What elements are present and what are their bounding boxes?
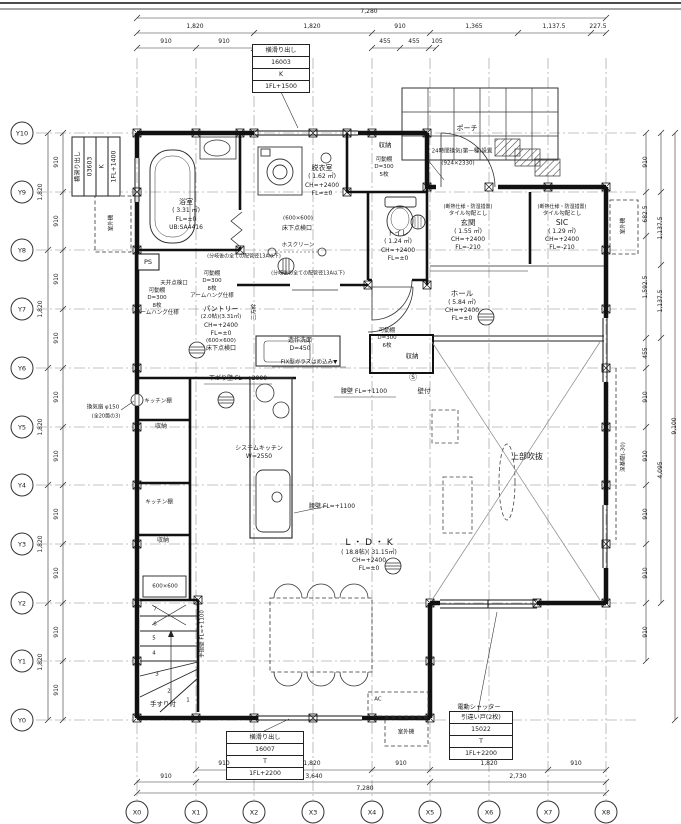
dimension-label: 1,820	[303, 24, 320, 30]
ldk-dashed	[432, 410, 515, 533]
dimension-label: 682.5	[643, 205, 649, 222]
room-sic-line: FL=-210	[538, 244, 587, 252]
room-ldk-line: FL=±0	[341, 565, 397, 573]
dimension-label: 910	[643, 156, 649, 167]
dimension-label: 1,137.5	[543, 24, 566, 30]
room-genkan: (断熱仕様・防湿措置)タイル勾配とし玄関( 1.55 ㎡)CH=+2400FL=…	[444, 204, 493, 253]
dimension-label: 910	[54, 332, 60, 343]
dimension-label: 227.5	[589, 24, 606, 30]
grid-bubble-y5: Y5	[11, 416, 34, 439]
washing-machine	[258, 147, 302, 195]
grid-bubble-y1: Y1	[11, 650, 34, 673]
exterior-walls	[137, 133, 606, 718]
annotation-label: PS	[144, 259, 152, 266]
window-spec-row: 1FL+1500	[253, 80, 309, 92]
annotation-label: 収納	[155, 424, 167, 430]
dimension-label: 2,730	[509, 774, 526, 780]
annotation-label: 下がり壁 FL=+2000	[209, 376, 267, 382]
dimension-label: 910	[160, 39, 171, 45]
dimension-label: 1,137.5	[658, 290, 664, 313]
dimension-label: 910	[54, 156, 60, 167]
shelf-closet-top-line: 可動棚	[374, 157, 393, 164]
grid-bubble-x4: X4	[361, 801, 384, 824]
room-genkan-line: 玄関	[444, 218, 493, 228]
dimension-label: 910	[54, 391, 60, 402]
room-hall-line: ( 5.84 ㎡)	[445, 299, 479, 307]
room-ldk-line: L ・ D ・ K	[341, 537, 397, 549]
dimension-label: 910	[54, 684, 60, 695]
window-spec-row: K	[253, 68, 309, 80]
grid-bubble-y2: Y2	[11, 592, 34, 615]
dimension-label: 910	[54, 450, 60, 461]
annotation-label: 収納	[406, 353, 419, 360]
shelf-hall-closet: 可動棚D=3006枚	[377, 328, 396, 350]
room-toilet-line: FL=±0	[381, 255, 415, 263]
washbasin-label-line: D=450	[288, 345, 312, 353]
annotation-label: (924×2330)	[441, 161, 474, 167]
shelf-hall-closet-line: 可動棚	[377, 328, 396, 335]
annotation-label: (600×600)	[283, 216, 313, 222]
dimension-label: 910	[54, 508, 60, 519]
grid-bubble-y0: Y0	[11, 709, 34, 732]
washbasin-label-line: 造作洗面	[288, 337, 312, 345]
dimension-label: 910	[218, 761, 229, 767]
room-ldk: L ・ D ・ K( 18.8帖)( 31.15㎡)CH=+2400FL=±0	[341, 537, 397, 573]
dimension-label: 1,820	[186, 24, 203, 30]
annotation-label: 室外機	[109, 215, 115, 232]
dimension-label: 1,592.5	[643, 276, 649, 299]
shelf-left-line: 可動棚	[135, 288, 179, 295]
annotation-label: AC	[374, 697, 382, 703]
dimension-label: 455	[643, 347, 649, 358]
grid-bubble-x6: X6	[478, 801, 501, 824]
shelf-left: 可動棚D=3008枚アームハング仕様	[135, 288, 179, 318]
room-hall-line: ホール	[445, 289, 479, 299]
annotation-label: 三方枠	[252, 304, 258, 321]
dimension-label: 7,280	[356, 786, 373, 792]
window-spec-row: T	[227, 755, 303, 767]
bath-counter	[200, 137, 236, 159]
dimension-label: 1,820	[480, 761, 497, 767]
annotation-label: 換気扇 φ150	[87, 405, 119, 411]
dimension-label: 9,100	[672, 417, 678, 434]
shelf-left-line: アームハング仕様	[135, 310, 179, 317]
annotation-label: 1	[186, 698, 190, 704]
shelf-pantry-top-line: D=300	[190, 278, 234, 285]
annotation-label: (全20箇の3)	[92, 415, 120, 420]
room-pantry-line: FL=±0	[201, 330, 242, 338]
kitchen-label-line: システムキッチン	[235, 445, 283, 453]
dimension-label: 1,820	[303, 761, 320, 767]
window-spec-row: 引違い戸(2枚)	[450, 712, 512, 723]
grid-bubble-x5: X5	[419, 801, 442, 824]
grid-bubble-x8: X8	[595, 801, 618, 824]
floor-plan-canvas: 横滑り出し 16003 K 1FL+1500 横滑り出し 03603 K 1FL…	[0, 0, 681, 824]
shelf-closet-top: 可動棚D=3005枚	[374, 157, 393, 179]
annotation-label: キッチン棚	[145, 500, 173, 506]
grid-bubble-y3: Y3	[11, 533, 34, 556]
window-spec-row: 横滑り出し	[73, 138, 84, 196]
annotation-label: 6	[153, 622, 157, 628]
room-bath-line: ( 3.31 ㎡)	[169, 207, 203, 215]
window-spec-row: 16007	[227, 743, 303, 755]
kitchen-label: システムキッチンW=2550	[235, 445, 283, 461]
annotation-label: 5	[152, 636, 156, 642]
shelf-hall-closet-line: 6枚	[377, 343, 396, 350]
room-dressing-line: FL=±0	[305, 190, 339, 198]
shelf-left-line: D=300	[135, 295, 179, 302]
shelf-pantry-top: 可動棚D=3008枚アームハング仕様	[190, 271, 234, 301]
kitchen-label-line: W=2550	[235, 453, 283, 461]
shelf-closet-top-line: 5枚	[374, 172, 393, 179]
room-genkan-line: ( 1.55 ㎡)	[444, 228, 493, 236]
window-spec-row: K	[96, 138, 108, 196]
dimension-label: 1,365	[465, 24, 482, 30]
grid-bubble-y4: Y4	[11, 474, 34, 497]
annotation-label: 天井点検口	[160, 281, 188, 287]
grid-bubble-y9: Y9	[11, 181, 34, 204]
room-toilet-line: CH=+2400	[381, 247, 415, 255]
room-sic-line: タイル勾配とし	[538, 211, 587, 218]
annotation-label: 2	[167, 689, 171, 695]
shelf-pantry-top-line: 可動棚	[190, 271, 234, 278]
annotation-label: 24時間換気(第一種)設置	[432, 149, 493, 155]
shelf-hall-closet-line: D=300	[377, 335, 396, 342]
room-bath-line: FL=±0	[169, 216, 203, 224]
dimension-label: 910	[54, 273, 60, 284]
grid-bubble-x2: X2	[243, 801, 266, 824]
annotation-label: 室外機	[398, 730, 415, 736]
annotation-label: 腰壁 FL=+1100	[341, 389, 387, 395]
grid-bubble-x0: X0	[126, 801, 149, 824]
annotation-label: 上部吹抜	[511, 453, 543, 461]
dimension-label: 910	[570, 761, 581, 767]
grid-bubble-y10: Y10	[11, 122, 34, 145]
grid-bubble-x7: X7	[537, 801, 560, 824]
shutter-title: 電動シャッター	[457, 702, 500, 711]
dimension-label: 910	[395, 761, 406, 767]
annotation-label: ポーチ	[457, 126, 478, 133]
annotation-label: 床下点検口	[282, 226, 312, 232]
annotation-label: 600×600	[152, 584, 178, 590]
window-spec-row: 1FL+2200	[227, 767, 303, 779]
room-genkan-line: (断熱仕様・防湿措置)	[444, 204, 493, 211]
dining-set	[270, 584, 372, 686]
grid-bubble-y8: Y8	[11, 239, 34, 262]
dimension-label: 4,095	[658, 461, 664, 478]
window-spec-row: 03603	[84, 138, 96, 196]
room-pantry-line: 床下点検口	[201, 345, 242, 353]
room-dressing-line: ( 1.62 ㎡)	[305, 173, 339, 181]
annotation-label: 手すり付	[150, 701, 176, 708]
window-spec-row: 1FL+2200	[450, 747, 512, 759]
dimension-label: 7,280	[360, 9, 377, 15]
room-sic-line: ( 1.29 ㎡)	[538, 228, 587, 236]
annotation-label: Ⓢ	[409, 374, 417, 382]
annotation-label: 深基礎(-30)	[621, 442, 627, 472]
annotation-label: 手摺壁 FL=+1100	[200, 610, 206, 658]
annotation-label: 7	[153, 607, 157, 613]
window-spec-row: 16003	[253, 56, 309, 68]
room-pantry-line: CH=+2400	[201, 322, 242, 330]
annotation-label: 収納	[157, 538, 169, 544]
dimension-label: 1,820	[38, 653, 44, 670]
room-sic-line: (断熱仕様・防湿措置)	[538, 204, 587, 211]
room-sic-line: SIC	[538, 218, 587, 228]
room-toilet: トイレ( 1.24 ㎡)CH=+2400FL=±0	[381, 229, 415, 263]
room-bath: 浴室( 3.31 ㎡)FL=±0UB:SA4416	[169, 198, 203, 232]
room-genkan-line: CH=+2400	[444, 236, 493, 244]
grid-bubble-y7: Y7	[11, 298, 34, 321]
room-ldk-line: CH=+2400	[341, 557, 397, 565]
dimension-label: 455	[408, 39, 419, 45]
dimension-label: 1,137.5	[658, 217, 664, 240]
annotation-label: 3	[155, 672, 159, 678]
dimension-label: 910	[218, 39, 229, 45]
grid-bubble-x3: X3	[302, 801, 325, 824]
page-border	[0, 3, 681, 9]
room-dressing: 脱衣室( 1.62 ㎡)CH=+2400FL=±0	[305, 164, 339, 198]
window-spec-top: 横滑り出し 16003 K 1FL+1500	[252, 44, 310, 93]
window-spec-left: 横滑り出し 03603 K 1FL+1400	[72, 137, 121, 197]
window-spec-shutter: 引違い戸(2枚) 15022 T 1FL+2200	[449, 711, 513, 760]
windows	[135, 131, 607, 720]
dimension-label: 910	[643, 508, 649, 519]
annotation-label: ホスクリーン	[282, 243, 315, 249]
dimension-label: 910	[160, 774, 171, 780]
dimension-label: 1,820	[38, 535, 44, 552]
window-spec-row: 1FL+1400	[108, 138, 120, 196]
dimension-label: 910	[54, 215, 60, 226]
shelf-closet-top-line: D=300	[374, 164, 393, 171]
annotation-label: FIX型ガラスはめ込み▼	[281, 360, 338, 366]
window-spec-row: 15022	[450, 723, 512, 735]
room-hall-line: CH=+2400	[445, 307, 479, 315]
dimension-label: 105	[431, 39, 442, 45]
dimension-label: 910	[643, 626, 649, 637]
room-ldk-line: ( 18.8帖)( 31.15㎡)	[341, 549, 397, 557]
dimension-label: 910	[643, 450, 649, 461]
annotation-label: 壁付	[418, 388, 431, 395]
room-sic-line: CH=+2400	[538, 236, 587, 244]
window-spec-row: T	[450, 735, 512, 747]
plan-linework	[0, 0, 681, 824]
annotation-label: (分岐後の全ての配管径13A以下)	[271, 272, 345, 277]
window-spec-row: 横滑り出し	[253, 45, 309, 56]
dimension-label: 455	[379, 39, 390, 45]
annotation-label: 腰壁 FL=+1100	[309, 504, 355, 510]
room-pantry: パントリー(2.0帖)(3.31㎡)CH=+2400FL=±0(600×600)…	[201, 305, 242, 354]
dimension-label: 1,820	[38, 418, 44, 435]
shelf-pantry-top-line: アームハング仕様	[190, 293, 234, 300]
dimension-label: 1,820	[38, 300, 44, 317]
dimension-label: 910	[643, 391, 649, 402]
room-dressing-line: CH=+2400	[305, 182, 339, 190]
dimension-label: 3,640	[305, 774, 322, 780]
dimension-label: 910	[54, 626, 60, 637]
annotation-label: 収納	[379, 142, 392, 149]
annotation-label: キッチン棚	[144, 399, 172, 405]
room-genkan-line: FL=-210	[444, 244, 493, 252]
grid-bubble-x1: X1	[185, 801, 208, 824]
window-spec-bottom: 横滑り出し 16007 T 1FL+2200	[226, 731, 304, 780]
grid-bubble-y6: Y6	[11, 357, 34, 380]
outdoor-units	[95, 196, 638, 746]
washbasin-label: 造作洗面D=450	[288, 337, 312, 353]
room-hall: ホール( 5.84 ㎡)CH=+2400FL=±0	[445, 289, 479, 323]
room-hall-line: FL=±0	[445, 315, 479, 323]
room-pantry-line: (2.0帖)(3.31㎡)	[201, 314, 242, 321]
room-sic: (断熱仕様・防湿措置)タイル勾配としSIC( 1.29 ㎡)CH=+2400FL…	[538, 204, 587, 253]
void-cross	[432, 342, 600, 600]
dimension-label: 910	[643, 567, 649, 578]
annotation-label: (分岐後の全ての配管径13A以下)	[207, 255, 281, 260]
dimension-label: 910	[394, 24, 405, 30]
annotation-label: 4	[152, 651, 156, 657]
annotation-label: 室外機	[621, 218, 627, 235]
room-toilet-line: ( 1.24 ㎡)	[381, 238, 415, 246]
window-spec-row: 横滑り出し	[227, 732, 303, 743]
dimension-label: 1,820	[38, 183, 44, 200]
room-bath-line: UB:SA4416	[169, 224, 203, 232]
dimension-label: 910	[54, 567, 60, 578]
